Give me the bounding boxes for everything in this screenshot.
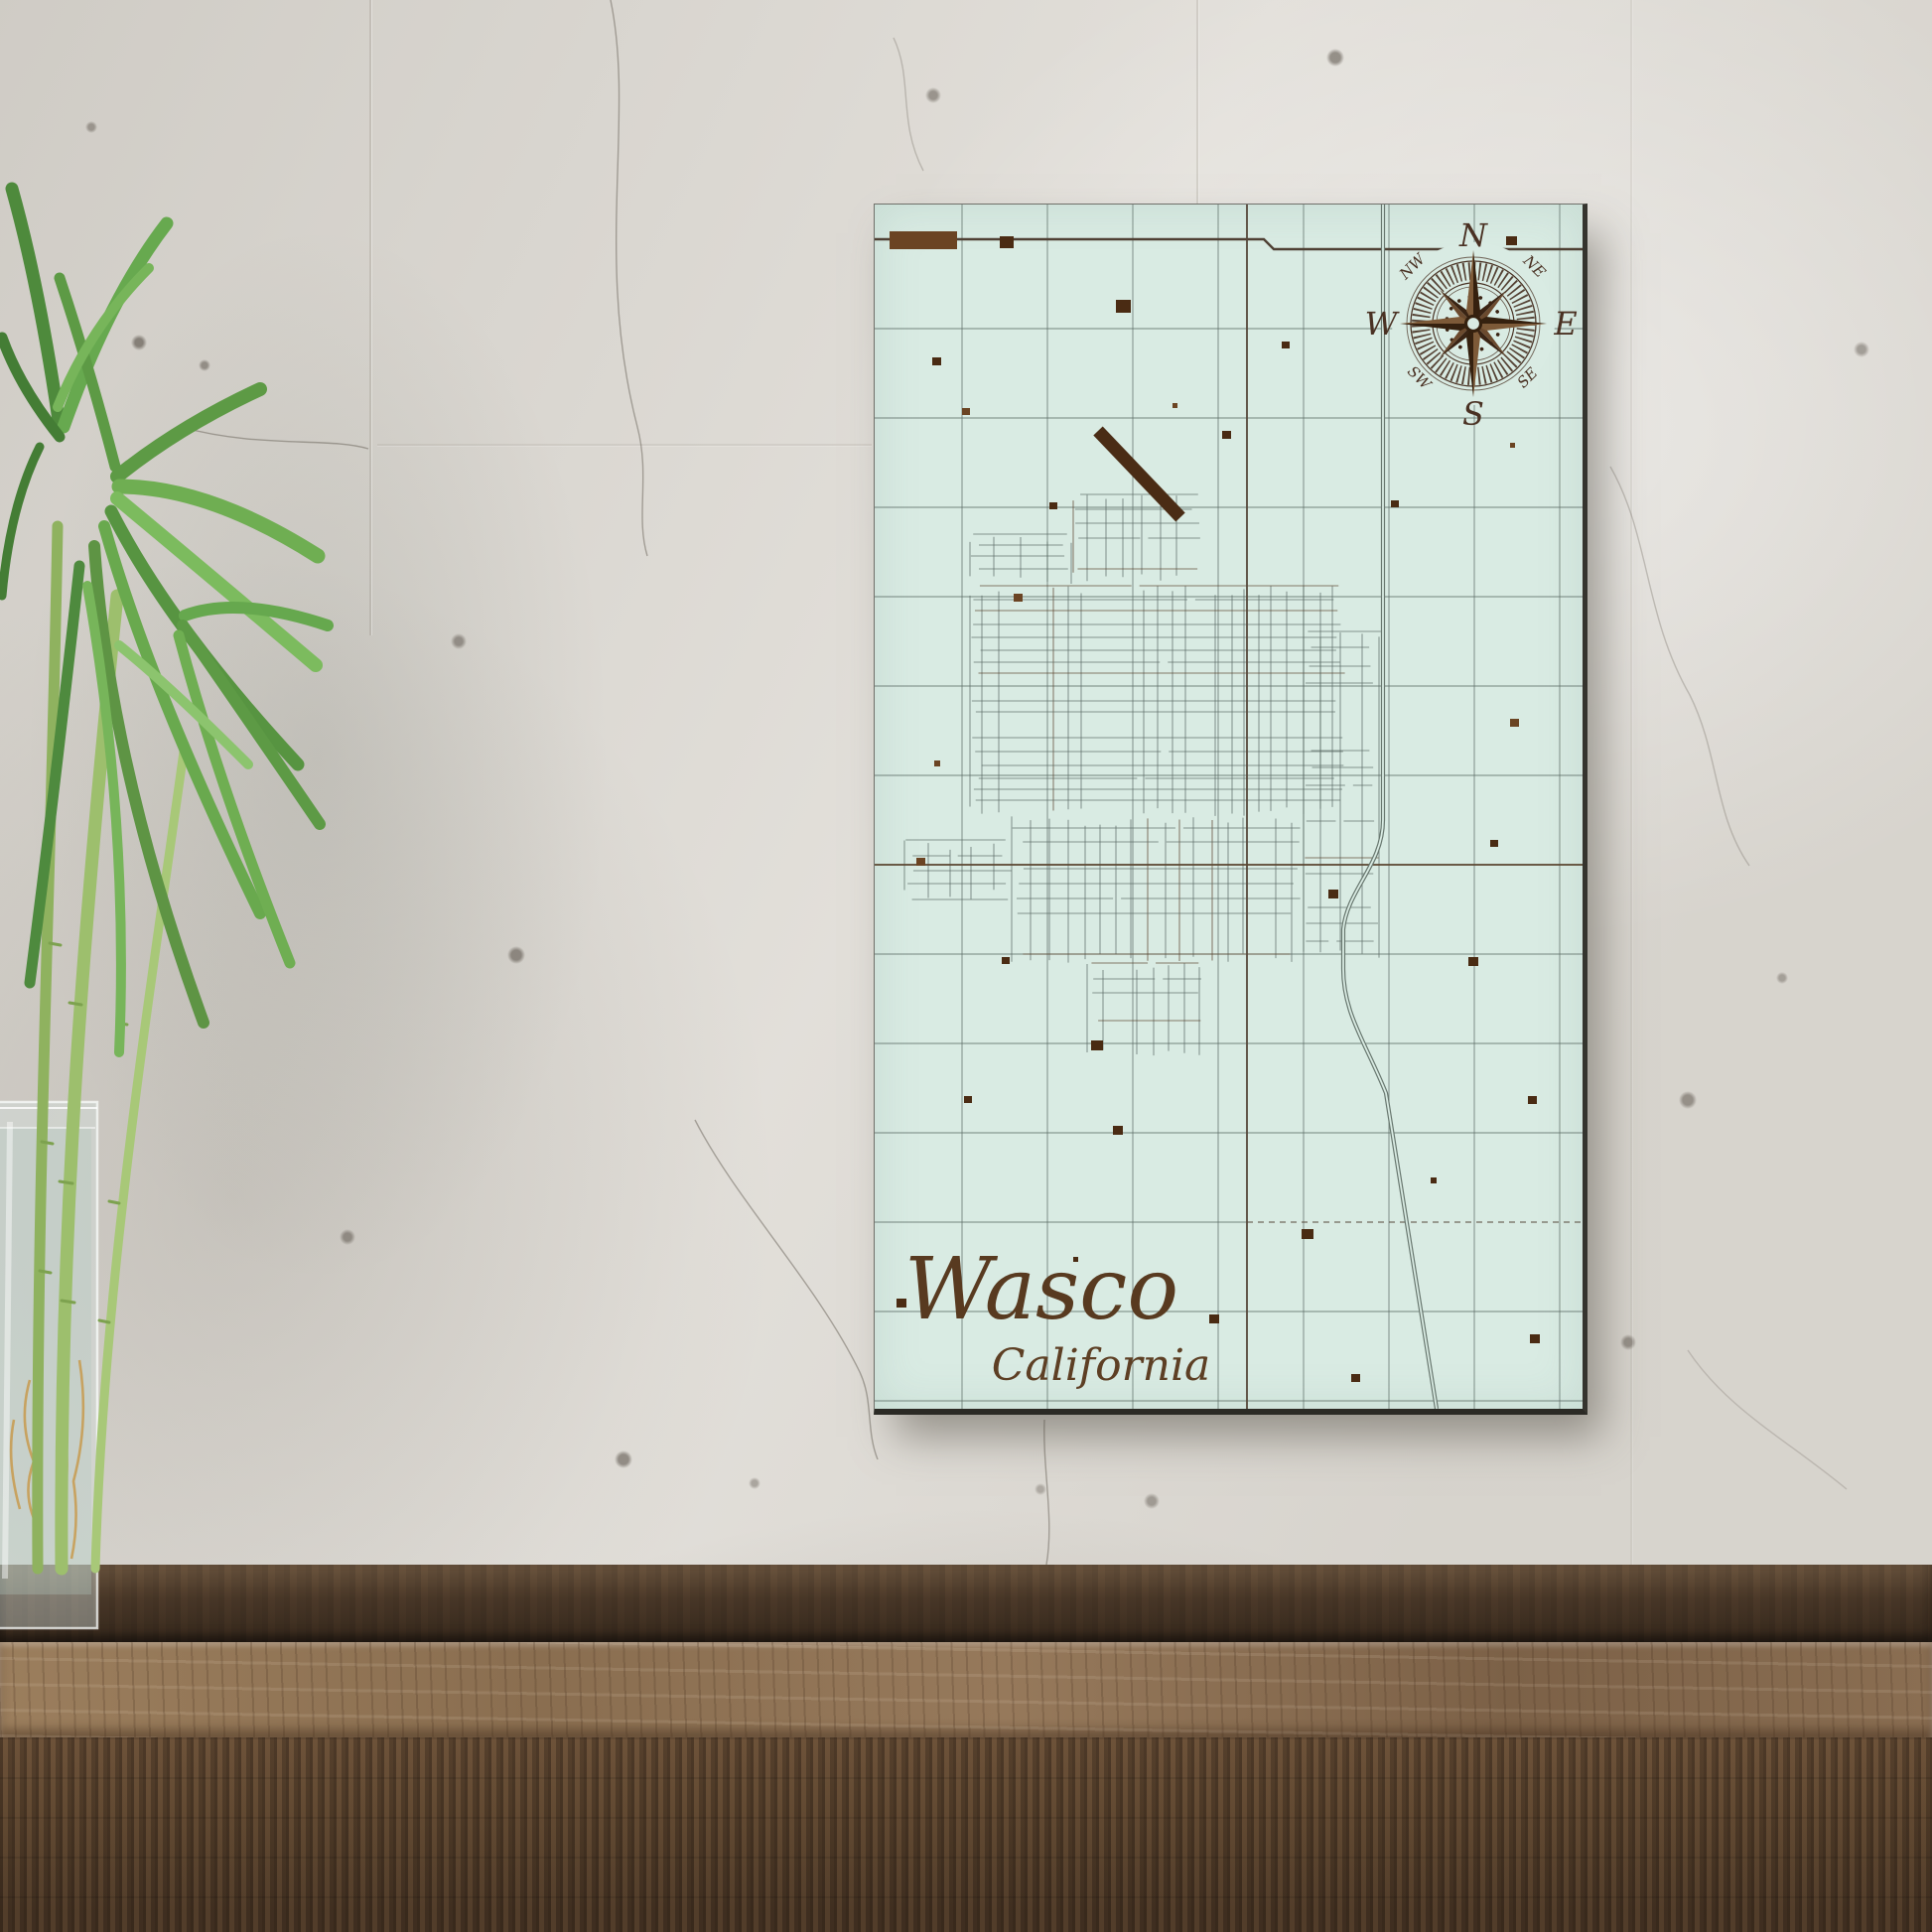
compass-label-east: E bbox=[1553, 305, 1577, 343]
city-street-grid bbox=[904, 494, 1381, 1055]
compass-label-west: W bbox=[1365, 305, 1401, 343]
bench-front-face bbox=[0, 1737, 1932, 1932]
bench-top-surface bbox=[0, 1642, 1932, 1737]
wall-seam-right bbox=[1630, 0, 1632, 1565]
plant bbox=[0, 129, 437, 1638]
scene: N S W E NW NE SW SE Wasco California bbox=[0, 0, 1932, 1932]
landmark-blocks bbox=[890, 231, 1540, 1382]
compass-label-north: N bbox=[1458, 216, 1488, 254]
map-artwork: N S W E NW NE SW SE Wasco California bbox=[874, 204, 1587, 1415]
map-subtitle: California bbox=[992, 1340, 1211, 1391]
wall-seam-horizontal bbox=[377, 444, 872, 446]
glass-vase bbox=[0, 1102, 97, 1628]
map-title: Wasco bbox=[904, 1240, 1178, 1339]
compass-label-south: S bbox=[1462, 395, 1484, 433]
map-svg: N S W E NW NE SW SE Wasco California bbox=[875, 205, 1583, 1409]
wall-seam-top bbox=[1196, 0, 1198, 204]
